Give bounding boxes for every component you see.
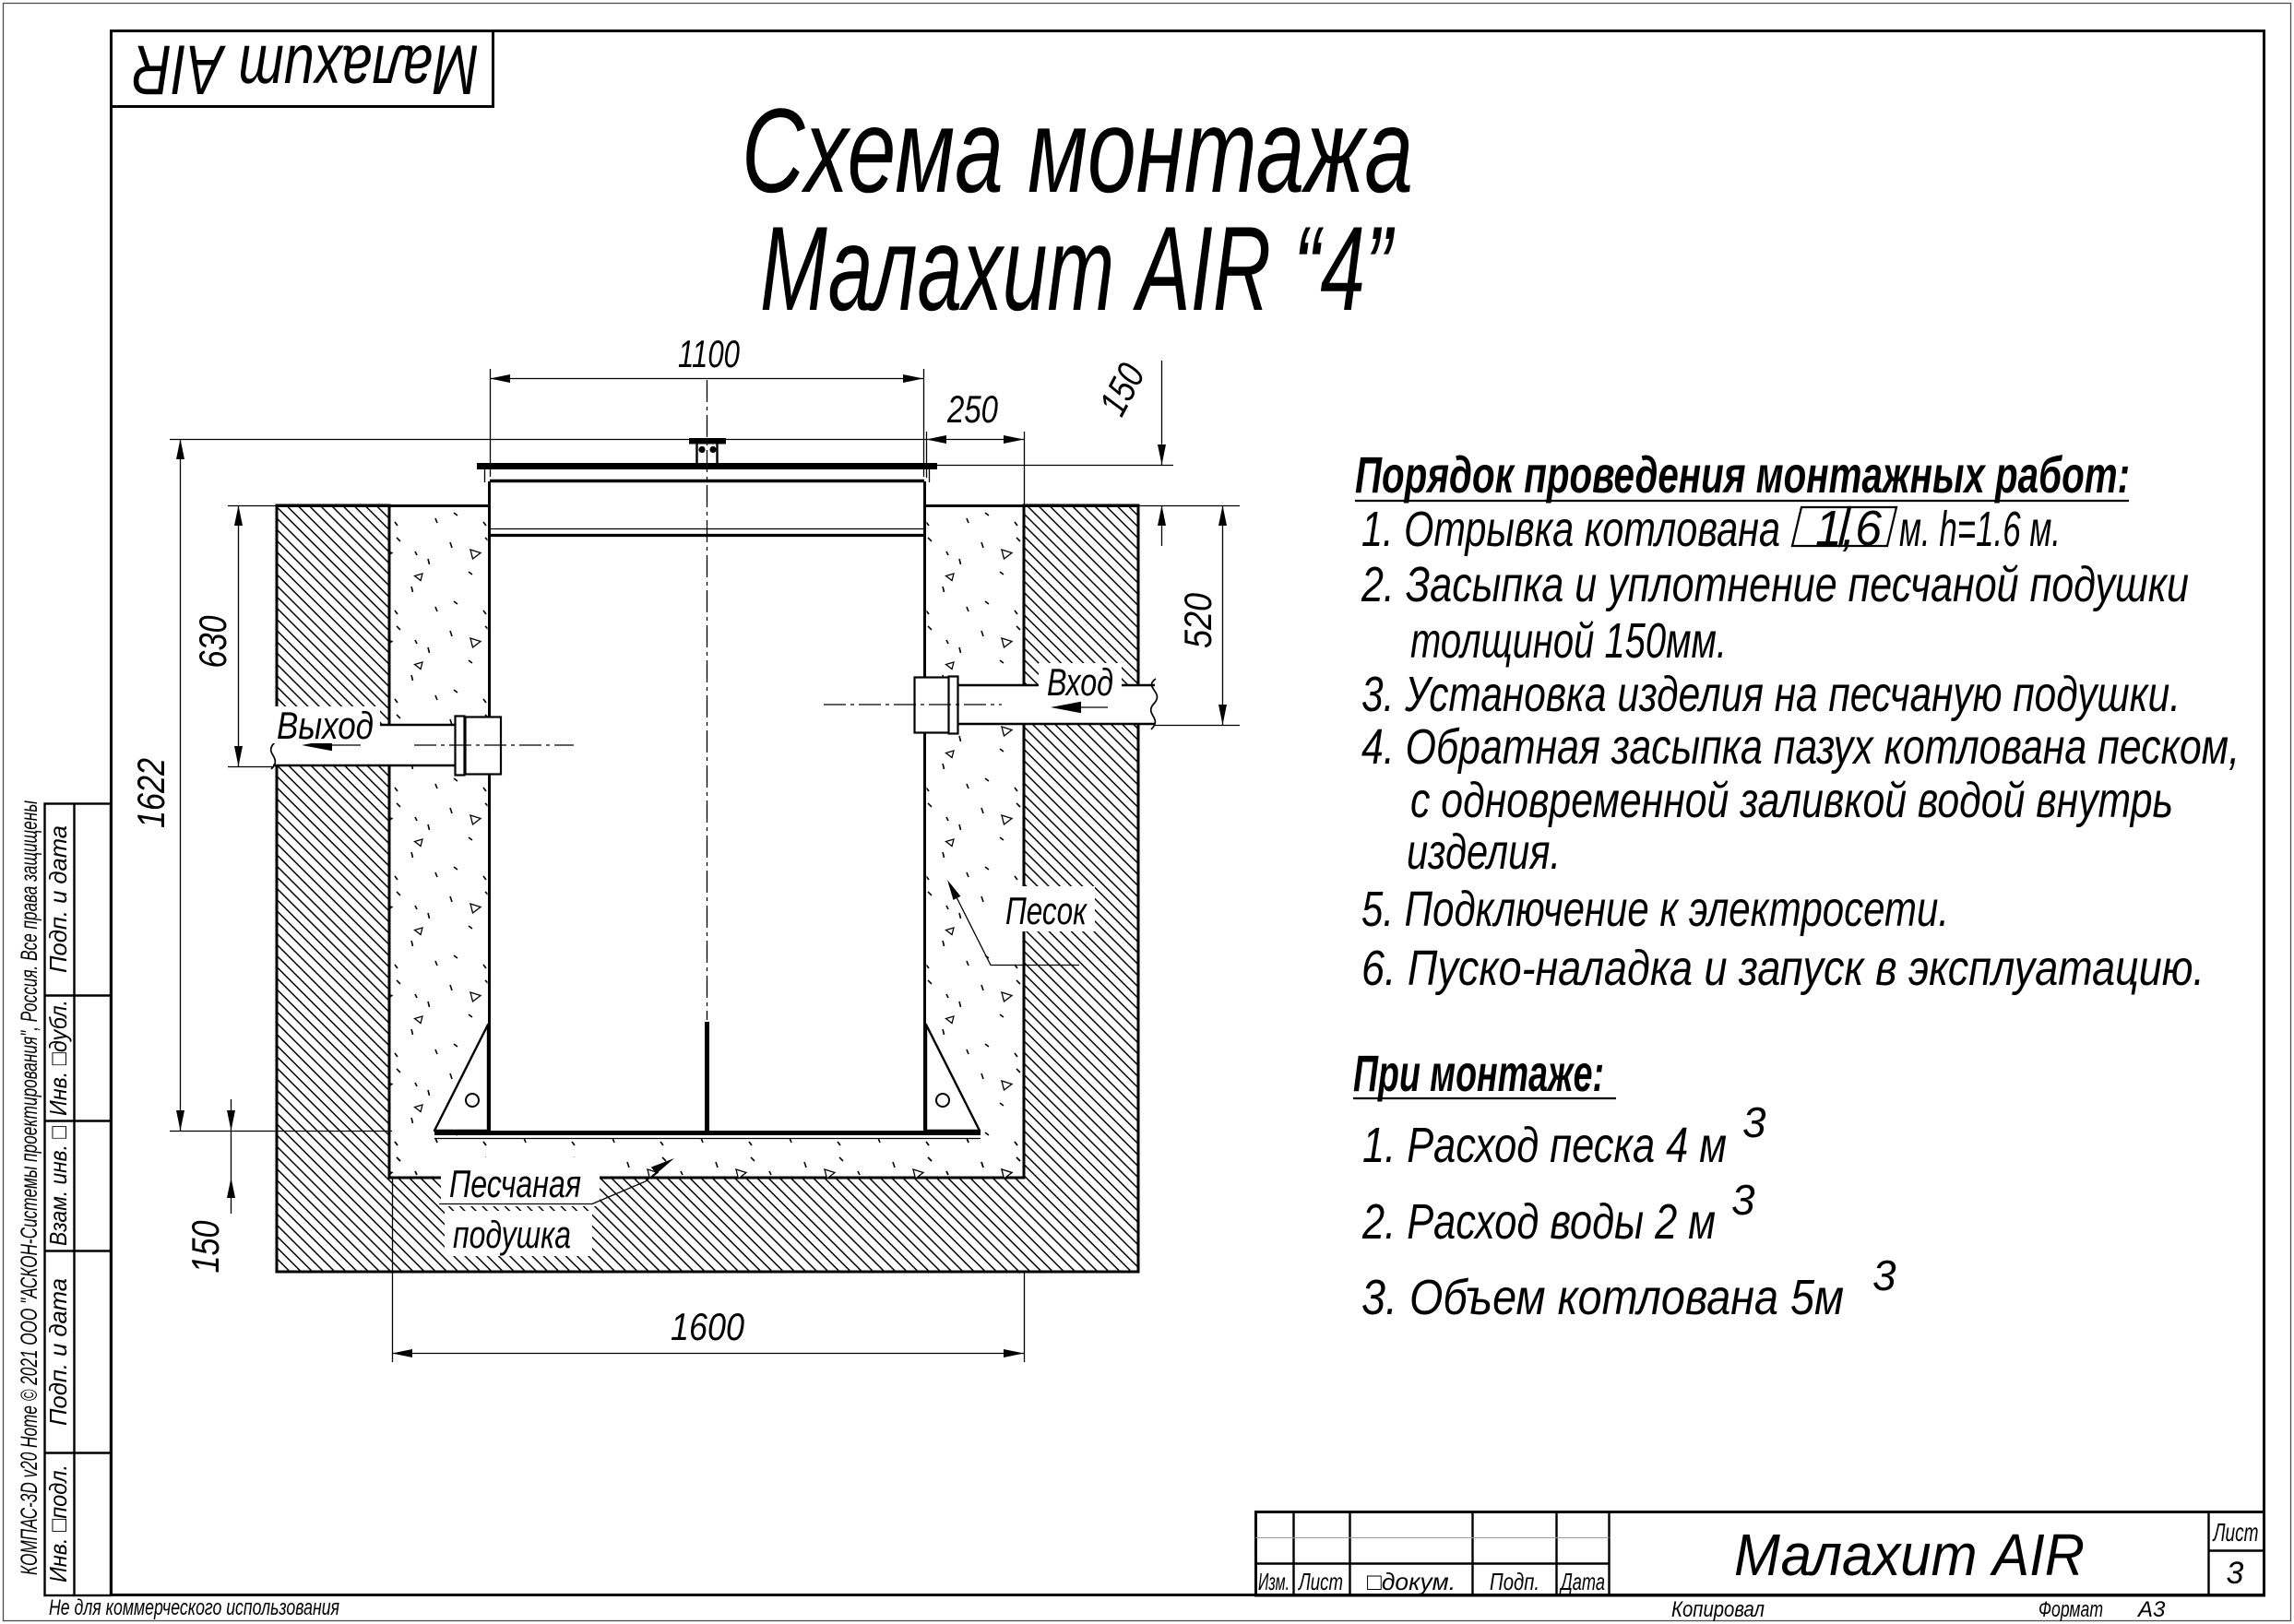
- svg-text:Формат: Формат: [2038, 1597, 2103, 1622]
- svg-text:1,6: 1,6: [1815, 501, 1883, 556]
- svg-text:Подп. и дата: Подп. и дата: [44, 1278, 72, 1426]
- svg-text:Не для коммерческого использов: Не для коммерческого использования: [49, 1595, 339, 1620]
- svg-text:3: 3: [2227, 1556, 2244, 1591]
- svg-text:2. Засыпка и уплотнение песчан: 2. Засыпка и уплотнение песчаной подушки: [1361, 557, 2189, 612]
- svg-text:1622: 1622: [129, 758, 172, 828]
- svg-text:520: 520: [1176, 592, 1219, 648]
- svg-text:630: 630: [191, 615, 234, 669]
- svg-text:3. Установка изделия на песчан: 3. Установка изделия на песчаную подушки…: [1361, 667, 2181, 722]
- svg-text:3: 3: [1731, 1176, 1755, 1224]
- svg-text:Песок: Песок: [1005, 889, 1088, 932]
- svg-text:Малахит AIR: Малахит AIR: [1734, 1522, 2085, 1588]
- svg-text:При монтаже:: При монтаже:: [1353, 1044, 1604, 1102]
- svg-text:м. h=1.6 м.: м. h=1.6 м.: [1899, 502, 2061, 557]
- svg-text:1600: 1600: [671, 1305, 745, 1348]
- svg-text:Малахит AIR “4”: Малахит AIR “4”: [760, 201, 1396, 336]
- svg-text:толщиной 150мм.: толщиной 150мм.: [1410, 613, 1727, 669]
- svg-text:Малахит AIR: Малахит AIR: [132, 30, 479, 109]
- svg-text:6. Пуско-наладка и запуск в эк: 6. Пуско-наладка и запуск в эксплуатацию…: [1361, 941, 2205, 996]
- svg-text:изделия.: изделия.: [1407, 824, 1561, 880]
- svg-text:Инв. □подл.: Инв. □подл.: [44, 1464, 72, 1583]
- svg-text:3. Объем котлована 5м: 3. Объем котлована 5м: [1361, 1270, 1844, 1325]
- svg-text:1100: 1100: [678, 332, 740, 375]
- svg-text:Подп.: Подп.: [1490, 1568, 1539, 1595]
- svg-text:Песчаная: Песчаная: [449, 1162, 581, 1205]
- svg-text:□докум.: □докум.: [1367, 1568, 1456, 1595]
- svg-text:250: 250: [946, 387, 998, 431]
- svg-text:1. Расход песка 4 м: 1. Расход песка 4 м: [1362, 1118, 1727, 1173]
- svg-text:4. Обратная засыпка пазух котл: 4. Обратная засыпка пазух котлована песк…: [1361, 719, 2240, 775]
- svg-text:Вход: Вход: [1047, 660, 1113, 704]
- svg-text:Инв. □дубл.: Инв. □дубл.: [44, 1000, 72, 1116]
- svg-text:подушка: подушка: [453, 1213, 571, 1256]
- svg-text:Изм.: Изм.: [1258, 1568, 1290, 1595]
- svg-text:Копировал: Копировал: [1671, 1597, 1765, 1622]
- svg-text:Выход: Выход: [277, 704, 374, 747]
- svg-text:150: 150: [184, 1220, 227, 1274]
- svg-text:Схема монтажа: Схема монтажа: [742, 83, 1413, 218]
- svg-text:3: 3: [1872, 1251, 1896, 1299]
- svg-text:5. Подключение к электросети.: 5. Подключение к электросети.: [1361, 882, 1949, 937]
- svg-text:Лист: Лист: [1298, 1568, 1343, 1595]
- svg-text:КОМПАС-3D v20 Home © 2021 ООО: КОМПАС-3D v20 Home © 2021 ООО "АСКОН-Сис…: [17, 800, 42, 1575]
- svg-text:2. Расход воды 2 м: 2. Расход воды 2 м: [1361, 1194, 1716, 1250]
- svg-text:А3: А3: [2136, 1597, 2166, 1622]
- svg-text:с одновременной заливкой водой: с одновременной заливкой водой внутрь: [1410, 773, 2173, 828]
- svg-text:Дата: Дата: [1559, 1568, 1605, 1595]
- svg-text:Взам. инв. □: Взам. инв. □: [44, 1126, 72, 1246]
- svg-text:3: 3: [1742, 1098, 1766, 1146]
- svg-text:Подп. и дата: Подп. и дата: [44, 825, 72, 973]
- svg-text:Порядок проведения монтажных р: Порядок проведения монтажных работ:: [1355, 445, 2130, 504]
- svg-text:Лист: Лист: [2212, 1518, 2258, 1547]
- svg-text:1. Отрывка котлована: 1. Отрывка котлована: [1361, 502, 1780, 557]
